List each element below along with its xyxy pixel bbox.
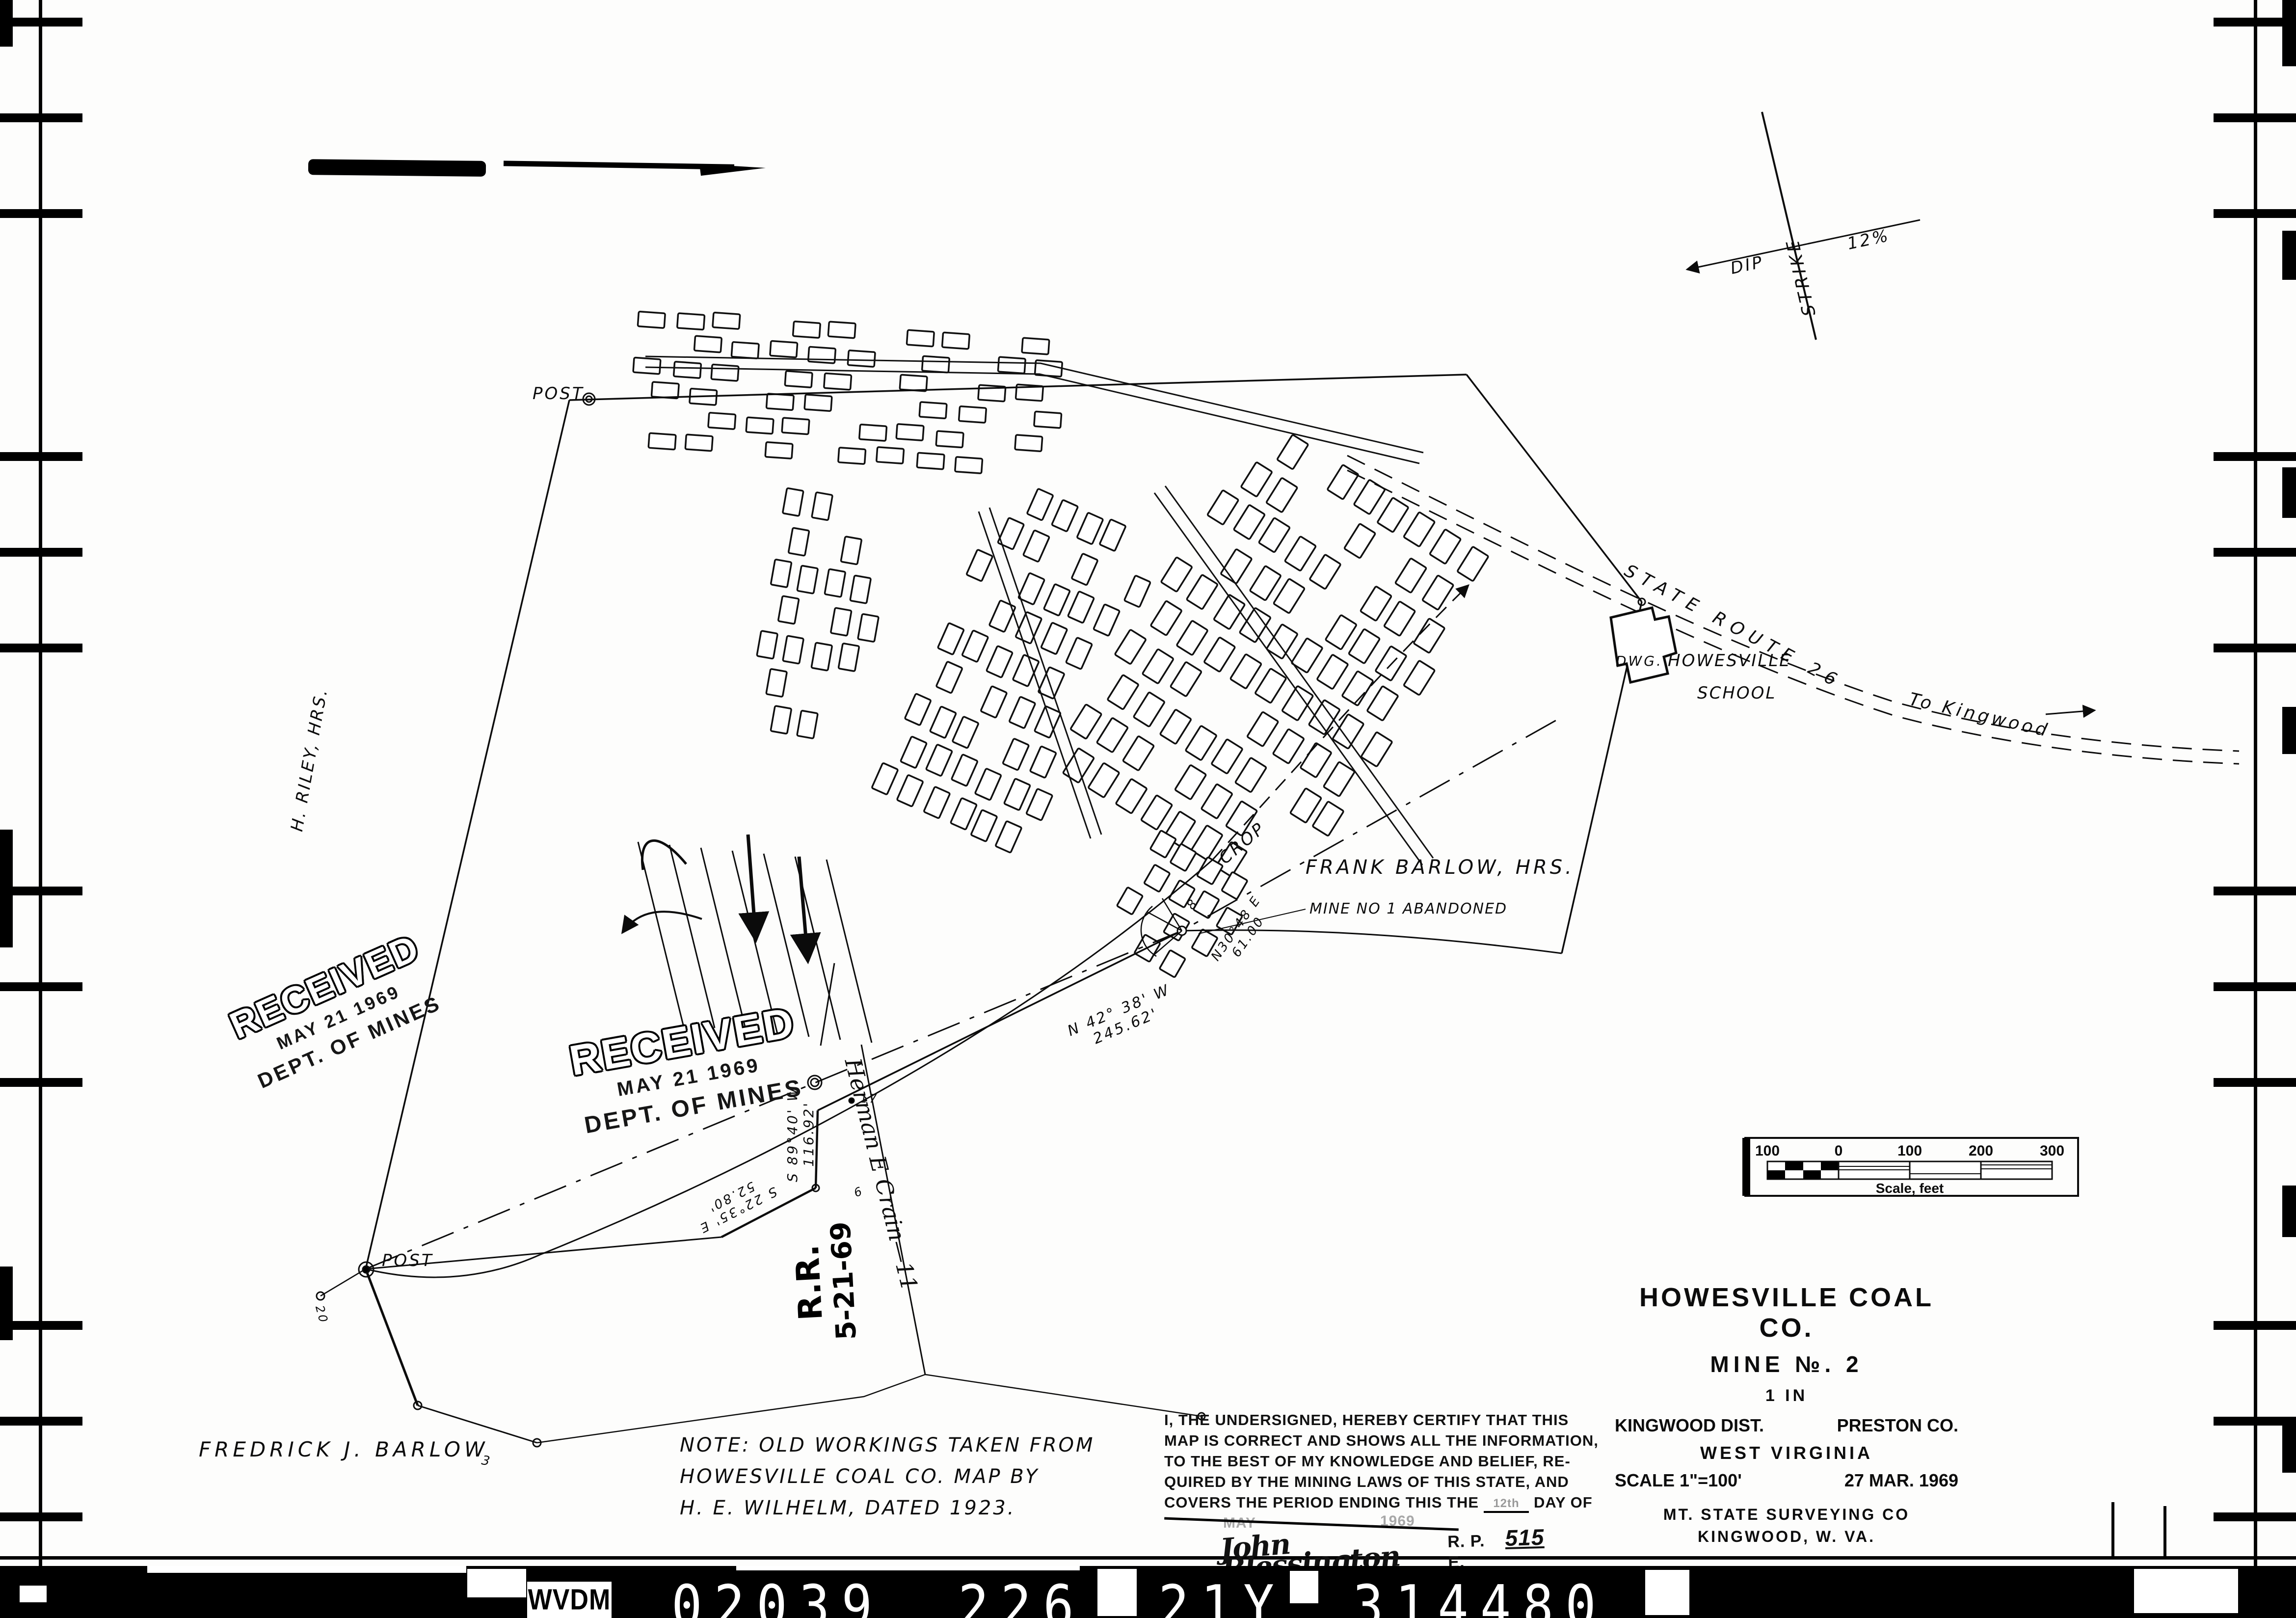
- note-line: NOTE: OLD WORKINGS TAKEN FROM: [680, 1429, 1095, 1461]
- cert-day-blank: 12th: [1484, 1496, 1529, 1513]
- note-block: NOTE: OLD WORKINGS TAKEN FROM HOWESVILLE…: [680, 1429, 1095, 1524]
- film-code-1: 02039: [671, 1573, 884, 1618]
- scale-tick: 0: [1835, 1143, 1843, 1159]
- cert-day-faint: 12th: [1493, 1497, 1519, 1510]
- strip-artifact: [736, 1566, 1080, 1570]
- title-district: KINGWOOD DIST.: [1615, 1415, 1764, 1436]
- scale-bar: 100 0 100 200 300 Scale, feet: [1742, 1138, 2078, 1196]
- title-company: HOWESVILLE COAL CO.: [1615, 1282, 1958, 1343]
- rr-date-annotation: R.R. 5-21-69: [787, 1221, 862, 1343]
- old-mine-workings-pillars: [628, 307, 1504, 992]
- note-line: HOWESVILLE COAL CO. MAP BY: [680, 1461, 1095, 1492]
- title-surveyor: MT. STATE SURVEYING CO: [1615, 1506, 1958, 1524]
- title-sheet: 1 IN: [1615, 1386, 1958, 1405]
- cert-line5b: DAY OF: [1534, 1492, 1593, 1513]
- note-line: H. E. WILHELM, DATED 1923.: [680, 1492, 1095, 1524]
- strip-artifact: [20, 1586, 47, 1602]
- rr-initials: R.R.: [787, 1222, 831, 1343]
- film-artifact-streaks: [308, 159, 766, 177]
- title-block: HOWESVILLE COAL CO. MINE №. 2 1 IN KINGW…: [1615, 1282, 1958, 1546]
- strip-artifact: [467, 1569, 526, 1597]
- film-code-4: 314480: [1353, 1573, 1608, 1618]
- strip-artifact: [1645, 1570, 1689, 1615]
- scanned-mine-map-page: 100 0 100 200 300 Scale, feet POST POST …: [0, 0, 2296, 1618]
- wvdm-code: WVDM: [528, 1583, 611, 1617]
- dwg-label: DWG.: [1616, 653, 1663, 669]
- wvdm-box: WVDM: [527, 1582, 612, 1618]
- title-county: PRESTON CO.: [1837, 1415, 1958, 1436]
- title-date: 27 MAR. 1969: [1844, 1470, 1958, 1491]
- cert-line: MAP IS CORRECT AND SHOWS ALL THE INFORMA…: [1164, 1430, 1606, 1451]
- scale-tick: 200: [1969, 1143, 1993, 1159]
- cert-line: I, THE UNDERSIGNED, HEREBY CERTIFY THAT …: [1164, 1410, 1606, 1430]
- title-scale: SCALE 1"=100': [1615, 1470, 1742, 1491]
- certification-block: I, THE UNDERSIGNED, HEREBY CERTIFY THAT …: [1164, 1410, 1606, 1578]
- cert-line: TO THE BEST OF MY KNOWLEDGE AND BELIEF, …: [1164, 1451, 1606, 1472]
- film-code-2: 226: [958, 1573, 1086, 1618]
- state-route-26-road: [1347, 456, 2239, 764]
- mine1-abandoned-label: MINE NO 1 ABANDONED: [1309, 900, 1507, 917]
- owner-label-frank-barlow: FRANK BARLOW, HRS.: [1306, 856, 1575, 879]
- school-label-2: SCHOOL: [1697, 683, 1776, 703]
- title-state: WEST VIRGINIA: [1615, 1443, 1958, 1463]
- strip-artifact: [2134, 1569, 2238, 1613]
- tiny-label-17: 17: [860, 1092, 879, 1106]
- strip-artifact: [147, 1566, 466, 1573]
- film-code-3: 21Y: [1158, 1573, 1286, 1618]
- owner-label-fredrick-barlow: FREDRICK J. BARLOW: [199, 1437, 489, 1461]
- microfilm-code-strip: WVDM 02039 226 21Y 314480: [0, 1566, 2296, 1618]
- school-dwg-building: [1611, 608, 1676, 682]
- post-label-top: POST: [533, 384, 585, 404]
- strip-artifact: [1290, 1571, 1318, 1603]
- scale-tick: 100: [1755, 1143, 1780, 1159]
- scale-caption: Scale, feet: [1876, 1181, 1944, 1196]
- cert-line: QUIRED BY THE MINING LAWS OF THIS STATE,…: [1164, 1472, 1606, 1492]
- title-mine-number: MINE №. 2: [1615, 1351, 1958, 1377]
- strip-artifact: [1097, 1569, 1137, 1616]
- title-surveyor-city: KINGWOOD, W. VA.: [1615, 1528, 1958, 1546]
- scale-tick: 100: [1897, 1143, 1922, 1159]
- rr-date: 5-21-69: [825, 1221, 863, 1341]
- cert-line-day: COVERS THE PERIOD ENDING THIS THE 12th D…: [1164, 1492, 1606, 1513]
- scale-tick: 300: [2040, 1143, 2064, 1159]
- cert-line5a: COVERS THE PERIOD ENDING THIS THE: [1164, 1492, 1479, 1513]
- engineer-license-number: 515: [1505, 1527, 1545, 1548]
- post-label-bottom: POST: [382, 1251, 434, 1270]
